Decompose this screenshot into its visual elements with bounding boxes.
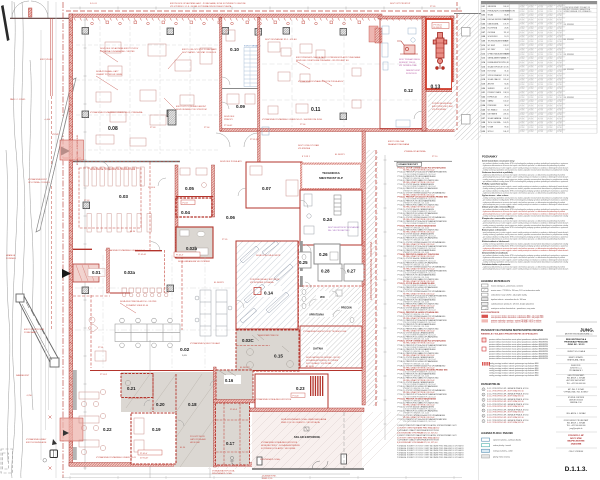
svg-text:CEMENTOVY: CEMENTOVY	[548, 22, 556, 24]
svg-text:CEMENTOVY: CEMENTOVY	[548, 117, 556, 119]
svg-text:POZIARNY USEK N1.04: POZIARNY USEK N1.04	[126, 304, 149, 307]
svg-text:CEMENTOVY: CEMENTOVY	[529, 112, 537, 114]
svg-text:POZOR NA VEDENIE: POZOR NA VEDENIE	[432, 102, 452, 105]
svg-text:POTER: POTER	[520, 93, 525, 95]
svg-text:PREDAJNA PLOCHA SHOWROOM: PREDAJNA PLOCHA SHOWROOM	[488, 9, 516, 12]
svg-text:CEMENTOVY: CEMENTOVY	[520, 117, 528, 119]
svg-text:0.02b: 0.02b	[186, 246, 198, 251]
svg-text:PT 08 (2): PRESTUP VZT 400x20: PT 08 (2): PRESTUP VZT 400x200 UPCHAVKA …	[398, 344, 447, 347]
svg-text:0.26: 0.26	[482, 114, 485, 116]
svg-text:POTER: POTER	[557, 101, 562, 103]
svg-text:42,37: 42,37	[504, 88, 508, 90]
svg-text:CEMENTOVY: CEMENTOVY	[529, 22, 537, 24]
svg-text:CEMENTOVY: CEMENTOVY	[520, 99, 528, 101]
svg-text:POTER: POTER	[557, 41, 562, 43]
svg-text:PT 06 (4): PRESTUP ELI KABELO: PT 06 (4): PRESTUP ELI KABELOVY ZVAZOK E…	[398, 303, 439, 306]
svg-text:PT 10 (2): PRESTUP VZT 400x20: PT 10 (2): PRESTUP VZT 400x200 UPCHAVKA …	[398, 393, 447, 396]
svg-text:CEMENTOVY: CEMENTOVY	[538, 35, 546, 37]
svg-text:VID. INTERIER: VID. INTERIER	[564, 54, 575, 56]
svg-text:OBJEKT SO-01 HALA: OBJEKT SO-01 HALA	[567, 350, 586, 353]
svg-text:VYZNACENIE DEMONT EXIST TECHNO: VYZNACENIE DEMONT EXIST TECHNOLOGIE	[303, 330, 347, 333]
svg-text:POTER: POTER	[538, 123, 543, 125]
svg-text:CEMENTOVY: CEMENTOVY	[538, 44, 546, 46]
svg-text:EL 90/DP1: EL 90/DP1	[335, 154, 345, 156]
svg-text:PT 08 (1): OTVOR V STENE 600x: PT 08 (1): OTVOR V STENE 600x400 POZ UPC…	[398, 340, 446, 343]
svg-text:SKLAD EXPOZICIE: SKLAD EXPOZICIE	[294, 435, 320, 439]
svg-text:CEMENTOVY: CEMENTOVY	[538, 13, 546, 15]
svg-text:0.26: 0.26	[319, 252, 328, 257]
svg-text:0.14: 0.14	[482, 61, 485, 64]
svg-text:SKLAD: SKLAD	[488, 14, 494, 17]
svg-text:POTER: POTER	[529, 11, 534, 13]
svg-text:CEMENTOVY: CEMENTOVY	[520, 56, 528, 58]
svg-text:181,64: 181,64	[503, 79, 508, 81]
svg-text:PODORYS 1.NP: PODORYS 1.NP	[568, 435, 584, 437]
svg-text:OPLOTENIA - PONECH: OPLOTENIA - PONECH	[28, 181, 50, 184]
svg-text:POTER: POTER	[538, 50, 543, 52]
svg-text:vsetky prestupy instalacii ute: vsetky prestupy instalacii utesnit syste…	[489, 374, 539, 377]
svg-text:GARAZ: GARAZ	[488, 100, 494, 103]
svg-text:0.28: 0.28	[321, 269, 330, 274]
svg-text:25,85: 25,85	[504, 28, 508, 30]
svg-text:PT 09 (5): OTVOR 300x300 CHRA: PT 09 (5): OTVOR 300x300 CHRANICKA EI90	[398, 381, 434, 384]
svg-text:POTER: POTER	[548, 37, 553, 39]
svg-text:CEMENTOVY: CEMENTOVY	[520, 125, 528, 127]
svg-text:PRIECKY: PRIECKY	[224, 119, 233, 121]
svg-text:ING. ARCH. J. NOVAK: ING. ARCH. J. NOVAK	[566, 412, 586, 415]
svg-text:GEN. PROJEKTANT:: GEN. PROJEKTANT:	[568, 374, 586, 377]
svg-text:0.02: 0.02	[180, 347, 190, 353]
svg-text:POTER: POTER	[520, 54, 525, 56]
svg-text:VYZNACENIE EXIST: VYZNACENIE EXIST	[28, 178, 48, 181]
svg-text:CEMENTOVY: CEMENTOVY	[520, 22, 528, 24]
svg-text:0.11: 0.11	[311, 107, 321, 113]
svg-text:CEMENTOVY: CEMENTOVY	[529, 5, 537, 7]
svg-text:0.22: 0.22	[482, 96, 485, 98]
svg-text:POTER: POTER	[557, 118, 562, 120]
svg-text:TECH. CHODBA: TECH. CHODBA	[488, 121, 502, 124]
svg-text:0.02a: 0.02a	[124, 270, 136, 275]
svg-text:P1 05-01: P1 05-01	[138, 254, 147, 256]
svg-text:TEL: +421 900 000 000: TEL: +421 900 000 000	[567, 383, 586, 385]
svg-text:MIESTNOST 8LP: MIESTNOST 8LP	[319, 176, 343, 180]
svg-text:CEMENTOVY: CEMENTOVY	[557, 99, 565, 101]
svg-text:PT 06 (5): OTVOR 300x300 CHRA: PT 06 (5): OTVOR 300x300 CHRANICKA EI90	[398, 307, 434, 310]
svg-text:POTER: POTER	[529, 101, 534, 103]
svg-text:CEMENTOVY: CEMENTOVY	[548, 87, 556, 89]
svg-text:existujuce ocelove konstrukcie: existujuce ocelove konstrukcie - ponecha…	[491, 307, 536, 310]
svg-text:PT 05 (4): PRESTUP ELI KABELO: PT 05 (4): PRESTUP ELI KABELOVY ZVAZOK E…	[398, 278, 439, 281]
svg-text:PT 05 (6): PRESTUP UK 2xDN50: PT 05 (6): PRESTUP UK 2xDN50 UPCHAVKA EI…	[398, 286, 438, 289]
svg-text:DATUM: 05/2023: DATUM: 05/2023	[569, 399, 583, 402]
svg-text:VYZNACENIE HRANY: VYZNACENIE HRANY	[26, 438, 47, 441]
svg-text:CEMENTOVY: CEMENTOVY	[529, 125, 537, 127]
svg-text:POTER: POTER	[538, 118, 543, 120]
svg-text:NOVE SATNIKOVE SKRINE - VID IN: NOVE SATNIKOVE SKRINE - VID INT	[306, 356, 341, 359]
svg-text:6: 6	[483, 416, 484, 418]
svg-text:POZIARNA OCHRANA R60 - VID PBS: POZIARNA OCHRANA R60 - VID PBS	[100, 50, 135, 53]
svg-text:POTER: POTER	[520, 131, 525, 133]
svg-text:murivo existujuce - ponechane,: murivo existujuce - ponechane, ocistene	[491, 284, 523, 287]
svg-text:POTER: POTER	[520, 50, 525, 52]
svg-text:CEMENTOVY: CEMENTOVY	[548, 130, 556, 132]
svg-text:PT 02-4: PT 02-4	[148, 187, 156, 189]
svg-text:POTER: POTER	[529, 45, 534, 47]
svg-text:POTER: POTER	[520, 32, 525, 34]
svg-text:POTER: POTER	[557, 71, 562, 73]
svg-text:0.18: 0.18	[482, 79, 485, 81]
svg-text:CEMENTOVY: CEMENTOVY	[538, 74, 546, 76]
svg-text:CEMENTOVY: CEMENTOVY	[538, 48, 546, 50]
svg-text:CEMENTOVY: CEMENTOVY	[557, 13, 565, 15]
svg-text:POTER: POTER	[538, 75, 543, 77]
svg-text:VID VYKRES D.1.1.8 - DETAIL KO: VID VYKRES D.1.1.8 - DETAIL KOTVENIA OBV…	[170, 5, 232, 8]
svg-text:PT 09 (1): OTVOR V STENE 600x: PT 09 (1): OTVOR V STENE 600x400 POZ UPC…	[398, 364, 446, 367]
svg-text:POTER: POTER	[529, 114, 534, 116]
svg-text:NOVA PODLAHA - LIATY: NOVA PODLAHA - LIATY	[96, 70, 119, 73]
svg-text:ARCHIV: ARCHIV	[488, 83, 495, 86]
svg-text:POTER: POTER	[520, 114, 525, 116]
svg-text:4: 4	[483, 405, 484, 407]
svg-text:NOVE SDK OPLASTENIE EXIST STLP: NOVE SDK OPLASTENIE EXIST STLPOV	[100, 47, 139, 50]
svg-text:NOVE ZARIADENIE VID INTERIER: NOVE ZARIADENIE VID INTERIER	[178, 260, 211, 263]
svg-text:BEZPECNOSTNE: BEZPECNOSTNE	[567, 441, 585, 443]
svg-text:FASADA PONECHANA: FASADA PONECHANA	[388, 143, 410, 146]
svg-text:CEMENTOVY: CEMENTOVY	[538, 95, 546, 97]
svg-text:POZEMKU: POZEMKU	[6, 258, 16, 260]
svg-text:NOVY VZT PROSTUP: NOVY VZT PROSTUP	[390, 3, 411, 5]
svg-text:REKONSTRUKCIA A: REKONSTRUKCIA A	[566, 338, 587, 341]
svg-text:DO PODLAHY - VID DETAIL: DO PODLAHY - VID DETAIL	[306, 362, 332, 365]
svg-text:CEMENTOVY: CEMENTOVY	[548, 9, 556, 11]
svg-text:PT 05: PT 05	[222, 239, 228, 241]
svg-text:DODAVKA INTERIERU, KOTVENIE: DODAVKA INTERIERU, KOTVENIE	[306, 359, 339, 362]
svg-text:CEMENTOVY: CEMENTOVY	[557, 125, 565, 127]
svg-text:PT 06 (3): PRESTUP ZTI DN110: PT 06 (3): PRESTUP ZTI DN110 MANZETA EI6…	[398, 298, 436, 301]
svg-text:CEMENTOVY: CEMENTOVY	[520, 104, 528, 106]
svg-text:ZV 90-07: ZV 90-07	[140, 458, 149, 460]
svg-text:POTER: POTER	[538, 24, 543, 26]
svg-text:POTER: POTER	[520, 37, 525, 39]
svg-text:0.01: 0.01	[482, 6, 485, 8]
svg-text:CEMENTOVY: CEMENTOVY	[557, 95, 565, 97]
svg-text:CEMENTOVY: CEMENTOVY	[557, 35, 565, 37]
svg-text:PARC. C. 1234/5: PARC. C. 1234/5	[10, 98, 26, 101]
svg-text:DENNA MIESTNOST: DENNA MIESTNOST	[488, 61, 504, 64]
svg-text:KOTOLNA: KOTOLNA	[488, 70, 497, 73]
svg-text:POTER: POTER	[548, 45, 553, 47]
svg-text:144,47: 144,47	[503, 131, 508, 133]
svg-text:SPEVNENA PLOCHA: SPEVNENA PLOCHA	[260, 458, 280, 461]
svg-text:POTER: POTER	[548, 93, 553, 95]
svg-text:P1 05-V: P1 05-V	[140, 453, 148, 455]
svg-text:8 T.OR 1: 8 T.OR 1	[302, 156, 311, 158]
svg-text:EL 30: EL 30	[130, 231, 136, 233]
svg-text:POTER: POTER	[520, 123, 525, 125]
svg-text:NOVY OCELOVY RAM: NOVY OCELOVY RAM	[298, 144, 319, 147]
svg-text:POTER: POTER	[548, 19, 553, 21]
svg-text:POTER: POTER	[557, 37, 562, 39]
svg-text:POTER: POTER	[557, 45, 562, 47]
svg-text:POTER: POTER	[538, 7, 543, 9]
svg-text:0.27: 0.27	[482, 118, 485, 120]
svg-text:CEMENTOVY: CEMENTOVY	[557, 78, 565, 80]
svg-text:POTER: POTER	[557, 54, 562, 56]
svg-text:2: 2	[483, 394, 484, 396]
svg-text:P 15-8: P 15-8	[293, 395, 300, 397]
svg-text:HR 80 MM: HR 80 MM	[190, 442, 200, 444]
svg-text:EXIST OCELOVA: EXIST OCELOVA	[388, 140, 404, 143]
svg-text:NOVE SDK: NOVE SDK	[224, 116, 235, 118]
svg-text:-1,250: -1,250	[26, 395, 33, 397]
svg-text:POTER: POTER	[520, 97, 525, 99]
svg-text:EL 30: EL 30	[180, 447, 186, 449]
svg-text:PREDSIEN: PREDSIEN	[488, 105, 497, 107]
svg-text:SPAD 1,5% OD OBJEKTU - VID SIT: SPAD 1,5% OD OBJEKTU - VID SITUACIA	[281, 421, 320, 424]
svg-text:PT 08 (4): PRESTUP ELI KABELO: PT 08 (4): PRESTUP ELI KABELOVY ZVAZOK E…	[398, 352, 439, 355]
svg-text:POSUVNE REGALY EXPOZICIE: POSUVNE REGALY EXPOZICIE	[250, 278, 280, 281]
svg-text:CEMENTOVY: CEMENTOVY	[548, 56, 556, 58]
svg-text:CEMENTOVY: CEMENTOVY	[520, 61, 528, 63]
svg-text:CEMENTOVY: CEMENTOVY	[520, 39, 528, 41]
svg-text:KOTA +-0,000 = 131,50 M N.M.: KOTA +-0,000 = 131,50 M N.M.	[76, 134, 79, 165]
svg-text:POTER: POTER	[538, 58, 543, 60]
svg-text:POTER: POTER	[557, 127, 562, 129]
svg-text:POTER: POTER	[538, 32, 543, 34]
svg-text:POTER: POTER	[520, 19, 525, 21]
svg-text:- pred zahajenim prac je nutne: - pred zahajenim prac je nutne vytycit a…	[482, 268, 568, 271]
svg-text:CEMENTOVY: CEMENTOVY	[529, 61, 537, 63]
svg-text:PT 02-2: PT 02-2	[100, 374, 108, 376]
svg-text:VID INTERIER DODAVKA: VID INTERIER DODAVKA	[250, 281, 274, 284]
svg-text:D.1.1.6 PODORYS 1.NP - NOVY S: D.1.1.6 PODORYS 1.NP - NOVY STAV, M 1:50	[487, 416, 524, 419]
svg-text:CEMENTOVY: CEMENTOVY	[538, 82, 546, 84]
svg-text:POTER: POTER	[548, 105, 553, 107]
svg-text:PT 07 (5): OTVOR 300x300 CHRA: PT 07 (5): OTVOR 300x300 CHRANICKA EI90	[398, 331, 434, 334]
svg-text:POTER: POTER	[548, 32, 553, 34]
svg-text:197,30: 197,30	[503, 75, 508, 77]
svg-text:POTER: POTER	[529, 84, 534, 86]
svg-text:CEMENTOVY: CEMENTOVY	[548, 31, 556, 33]
svg-text:CEMENTOVY: CEMENTOVY	[548, 61, 556, 63]
svg-text:CEMENTOVY: CEMENTOVY	[520, 65, 528, 67]
svg-text:POTER: POTER	[548, 67, 553, 69]
svg-text:1,0%: 1,0%	[182, 355, 187, 357]
svg-text:CHODBA: CHODBA	[488, 31, 496, 34]
svg-text:CEMENT POTER HR. 80MM: CEMENT POTER HR. 80MM	[96, 74, 122, 76]
svg-text:tepelna izolacia - mineralna v: tepelna izolacia - mineralna vlna hr. 10…	[491, 298, 527, 301]
svg-text:CEMENTOVY: CEMENTOVY	[529, 65, 537, 67]
svg-text:CEMENTOVY: CEMENTOVY	[520, 130, 528, 132]
svg-text:ARCHITEKTONICKA KANCELARIA s.r: ARCHITEKTONICKA KANCELARIA s.r.o.	[565, 333, 593, 336]
svg-text:PT 09 (6): PRESTUP UK 2xDN50: PT 09 (6): PRESTUP UK 2xDN50 UPCHAVKA EI…	[398, 385, 438, 388]
svg-text:CEMENTOVY: CEMENTOVY	[548, 108, 556, 110]
svg-text:CEMENTOVY: CEMENTOVY	[557, 26, 565, 28]
svg-text:POTER: POTER	[520, 101, 525, 103]
svg-text:PT 02 (6): PRESTUP UK 2xDN50: PT 02 (6): PRESTUP UK 2xDN50 UPCHAVKA EI…	[398, 212, 438, 215]
svg-text:5: 5	[483, 410, 484, 412]
svg-text:CEMENTOVY: CEMENTOVY	[538, 9, 546, 11]
svg-text:CEMENTOVY: CEMENTOVY	[529, 108, 537, 110]
svg-text:EL 90/DP1: EL 90/DP1	[434, 27, 443, 29]
svg-text:CEMENTOVY: CEMENTOVY	[548, 13, 556, 15]
svg-text:CEMENTOVY: CEMENTOVY	[538, 69, 546, 71]
svg-text:POTER: POTER	[538, 93, 543, 95]
svg-text:POTER: POTER	[529, 110, 534, 112]
svg-text:spevnene plochy - zamkova dlaz: spevnene plochy - zamkova dlazba	[493, 440, 521, 442]
svg-text:CEMENTOVY: CEMENTOVY	[548, 78, 556, 80]
svg-text:PT 10 (6): PRESTUP UK 2xDN50: PT 10 (6): PRESTUP UK 2xDN50 UPCHAVKA EI…	[398, 410, 438, 413]
svg-text:CEMENTOVY: CEMENTOVY	[520, 48, 528, 50]
svg-text:PT 03 (4): PRESTUP ELI KABELO: PT 03 (4): PRESTUP ELI KABELOVY ZVAZOK E…	[398, 228, 439, 231]
svg-text:POTER: POTER	[520, 28, 525, 30]
svg-text:POLOZIT NOVU: POLOZIT NOVU	[190, 436, 205, 438]
svg-text:0.15: 0.15	[274, 354, 283, 359]
svg-text:PT 07 (4): PRESTUP ELI KABELO: PT 07 (4): PRESTUP ELI KABELOVY ZVAZOK E…	[398, 327, 439, 330]
svg-text:CEMENTOVY: CEMENTOVY	[529, 87, 537, 89]
svg-text:CEMENTOVY: CEMENTOVY	[548, 18, 556, 20]
svg-text:0.10: 0.10	[482, 45, 485, 47]
svg-text:CEMENTOVY: CEMENTOVY	[529, 56, 537, 58]
svg-text:PT 04 (3): PRESTUP ZTI DN110: PT 04 (3): PRESTUP ZTI DN110 MANZETA EI6…	[398, 249, 436, 252]
svg-text:ING. ARCH. J. NOVAK: ING. ARCH. J. NOVAK	[567, 422, 586, 425]
svg-text:3: 3	[483, 400, 484, 402]
svg-text:NOVE PRIECKY SDK: NOVE PRIECKY SDK	[128, 398, 148, 400]
svg-text:D.1.1.3.: D.1.1.3.	[565, 466, 588, 473]
svg-text:1: 1	[483, 389, 484, 391]
svg-text:CEMENTOVY: CEMENTOVY	[557, 61, 565, 63]
svg-text:CEMENTOVY: CEMENTOVY	[520, 52, 528, 54]
svg-text:EXIST PRESVETLOVACIE PASY V ST: EXIST PRESVETLOVACIE PASY V STRESNOM PLA…	[296, 56, 361, 59]
svg-text:0.06: 0.06	[226, 215, 235, 220]
svg-text:POTER: POTER	[520, 62, 525, 64]
svg-text:PT 06 (2): PRESTUP VZT 400x20: PT 06 (2): PRESTUP VZT 400x200 UPCHAVKA …	[398, 294, 447, 297]
svg-text:RIESENIE JE V SULADE S PROJEKT: RIESENIE JE V SULADE S PROJEKTOM PBS OD …	[481, 333, 538, 336]
svg-text:CEMENTOVY: CEMENTOVY	[529, 31, 537, 33]
svg-text:POTER: POTER	[520, 110, 525, 112]
svg-text:8) KOORDINOVAT S PROFESIAMI Z: 8) KOORDINOVAT S PROFESIAMI ZTI, UK, VZT…	[397, 441, 438, 444]
svg-text:CEMENTOVY: CEMENTOVY	[520, 35, 528, 37]
svg-text:0.21: 0.21	[127, 386, 136, 391]
svg-text:CEMENTOVY: CEMENTOVY	[548, 44, 556, 46]
svg-text:RAMPA EXIST: RAMPA EXIST	[16, 374, 30, 377]
svg-text:AT 05-01: AT 05-01	[306, 365, 315, 368]
svg-text:POTER: POTER	[529, 62, 534, 64]
svg-text:POTER: POTER	[557, 123, 562, 125]
svg-text:POZNAMKA: ROZMERY OTVOROV OVER: POZNAMKA: ROZMERY OTVOROV OVERIT NA STAV…	[397, 445, 465, 448]
svg-text:PT 11 (1): OTVOR V STENE 600x: PT 11 (1): OTVOR V STENE 600x400 POZ UPC…	[398, 414, 446, 417]
svg-text:0.12: 0.12	[404, 88, 413, 93]
svg-text:CEMENTOVY: CEMENTOVY	[538, 39, 546, 41]
svg-text:CEMENTOVY: CEMENTOVY	[538, 22, 546, 24]
svg-text:POTER: POTER	[548, 101, 553, 103]
svg-text:CEMENTOVY: CEMENTOVY	[548, 99, 556, 101]
svg-text:CEMENTOVY: CEMENTOVY	[548, 95, 556, 97]
svg-text:0.11: 0.11	[482, 49, 485, 51]
svg-text:VID. INTERIER: VID. INTERIER	[564, 97, 575, 99]
svg-text:PT 11 (2): PRESTUP VZT 400x20: PT 11 (2): PRESTUP VZT 400x200 UPCHAVKA …	[398, 418, 447, 421]
svg-text:POTER: POTER	[520, 41, 525, 43]
svg-text:CEMENTOVY: CEMENTOVY	[520, 108, 528, 110]
svg-text:NOSNOST 250 KG: NOSNOST 250 KG	[399, 62, 416, 64]
svg-text:NOVA SDK PRIECKA HR 150 - VID: NOVA SDK PRIECKA HR 150 - VID PBS	[120, 300, 157, 303]
svg-text:CEMENTOVY: CEMENTOVY	[529, 95, 537, 97]
svg-text:PT 08 (6): PRESTUP UK 2xDN50: PT 08 (6): PRESTUP UK 2xDN50 UPCHAVKA EI…	[398, 360, 438, 363]
svg-text:PT 05 (5): OTVOR 300x300 CHRA: PT 05 (5): OTVOR 300x300 CHRANICKA EI90	[398, 282, 435, 285]
svg-text:NOVY ELEKTRICKY ROZVADZAC: NOVY ELEKTRICKY ROZVADZAC	[328, 226, 360, 229]
svg-text:POTER: POTER	[557, 32, 562, 34]
svg-text:CEMENTOVY: CEMENTOVY	[538, 26, 546, 28]
svg-text:UPRATOVNA: UPRATOVNA	[309, 314, 324, 317]
svg-text:POTER: POTER	[529, 15, 534, 17]
svg-text:PT 04 (2): PRESTUP VZT 400x20: PT 04 (2): PRESTUP VZT 400x200 UPCHAVKA …	[398, 245, 447, 248]
svg-text:nove poziarne deliace konstruk: nove poziarne deliace konstrukcie s odol…	[491, 316, 544, 319]
svg-text:CEMENTOVY: CEMENTOVY	[529, 44, 537, 46]
svg-text:POTER: POTER	[520, 15, 525, 17]
svg-text:POTER: POTER	[548, 62, 553, 64]
svg-text:EXISTUJUCA PRIEHRADOVA STENA -: EXISTUJUCA PRIEHRADOVA STENA - PONECHANA	[370, 241, 373, 300]
svg-text:0.20: 0.20	[156, 402, 165, 407]
svg-text:CEMENTOVY: CEMENTOVY	[548, 52, 556, 54]
svg-text:CEMENTOVY: CEMENTOVY	[538, 112, 546, 114]
svg-text:PT 06 (6): PRESTUP UK 2xDN50: PT 06 (6): PRESTUP UK 2xDN50 UPCHAVKA EI…	[398, 311, 439, 314]
svg-text:VID. INTERIER: VID. INTERIER	[564, 69, 575, 71]
svg-text:POTER: POTER	[529, 28, 534, 30]
svg-text:CEMENTOVY: CEMENTOVY	[520, 82, 528, 84]
svg-text:65,38: 65,38	[504, 15, 508, 17]
svg-text:CEMENTOVY: CEMENTOVY	[538, 130, 546, 132]
svg-text:poziarne upchavky a prestupy -: poziarne upchavky a prestupy - system PR…	[491, 321, 542, 324]
svg-text:POTER: POTER	[529, 105, 534, 107]
svg-text:CEMENTOVY: CEMENTOVY	[548, 26, 556, 28]
svg-text:CEMENTOVY: CEMENTOVY	[538, 56, 546, 58]
svg-text:ZODPOVEDNY PROJEKTANT: ZODPOVEDNY PROJEKTANT	[564, 419, 590, 422]
svg-text:PT 02 (1): OTVOR V STENE 600x: PT 02 (1): OTVOR V STENE 600x400 POZ UPC…	[398, 191, 446, 194]
svg-text:CEMENTOVY: CEMENTOVY	[548, 91, 556, 93]
svg-text:JUNG SK - SO 01: JUNG SK - SO 01	[568, 344, 586, 346]
svg-text:POTER: POTER	[520, 80, 525, 82]
svg-text:POTER: POTER	[548, 131, 553, 133]
svg-text:DIELNA / SERVIS PRACOVISKO: DIELNA / SERVIS PRACOVISKO	[488, 18, 514, 21]
svg-text:CEMENTOVY: CEMENTOVY	[538, 99, 546, 101]
svg-text:CEMENTOVY: CEMENTOVY	[529, 78, 537, 80]
svg-text:POTER: POTER	[529, 67, 534, 69]
svg-text:0.13: 0.13	[482, 58, 485, 60]
svg-text:99,20: 99,20	[504, 127, 508, 129]
svg-text:TECHNICKA: TECHNICKA	[322, 171, 340, 175]
svg-text:0.14: 0.14	[264, 291, 273, 296]
svg-text:POTER: POTER	[548, 75, 553, 77]
svg-text:0.04: 0.04	[181, 210, 190, 215]
svg-text:CEMENTOVY: CEMENTOVY	[520, 121, 528, 123]
svg-text:POTER: POTER	[548, 7, 553, 9]
svg-text:0.03: 0.03	[482, 15, 485, 17]
svg-text:PT 10 (3): PRESTUP ZTI DN110: PT 10 (3): PRESTUP ZTI DN110 MANZETA EI6…	[398, 397, 437, 400]
svg-text:SPEVNENA PLOCHA: SPEVNENA PLOCHA	[212, 472, 232, 475]
svg-text:DEMONT EXIST: DEMONT EXIST	[406, 70, 421, 72]
svg-text:CEMENTOVY: CEMENTOVY	[529, 18, 537, 20]
svg-text:PT 02 (4): PRESTUP ELI KABELO: PT 02 (4): PRESTUP ELI KABELOVY ZVAZOK E…	[398, 204, 439, 207]
svg-text:0.19: 0.19	[482, 84, 485, 86]
svg-text:POTER: POTER	[548, 15, 553, 17]
svg-text:0.24: 0.24	[323, 217, 332, 222]
svg-text:poziarne deliace konstrukcie m: poziarne deliace konstrukcie musia splna…	[489, 357, 548, 360]
svg-text:CEMENTOVY: CEMENTOVY	[548, 74, 556, 76]
svg-text:PT 02 (5): OTVOR 300x300 CHRA: PT 02 (5): OTVOR 300x300 CHRANICKA EI90	[398, 208, 434, 211]
svg-text:NOVY ZDVIHACI MECH.: NOVY ZDVIHACI MECH.	[399, 58, 421, 61]
svg-text:PT 02 (2): PRESTUP VZT 400x20: PT 02 (2): PRESTUP VZT 400x200 UPCHAVKA …	[398, 195, 448, 198]
svg-text:PT 10 (1): OTVOR V STENE 600x: PT 10 (1): OTVOR V STENE 600x400 POZ UPC…	[398, 389, 446, 392]
